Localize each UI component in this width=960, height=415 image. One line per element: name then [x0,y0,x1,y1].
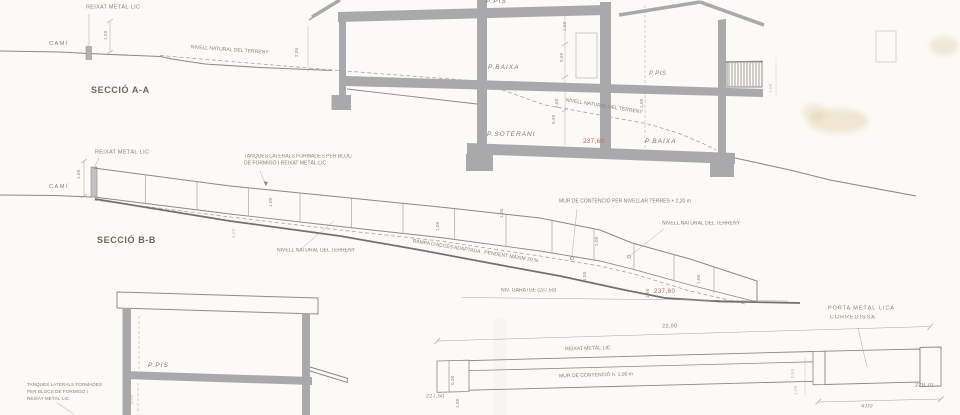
dim-f-aa: 1,00 [769,84,774,93]
aa-terrain [0,14,916,196]
label-tanques-line2-c: PER BLOCS DE FORMIGÓ I [27,390,88,395]
dim-p7-bb: 1,00 [697,275,702,284]
label-tanques-line3-c: REIXAT METÀL·LIC [27,397,69,402]
label-niv-garatge-bb: NIV. GARATGE (237,50) [501,288,556,293]
elevation-value-bb: 237,60 [654,289,675,295]
label-p-baixa-right-aa: P.BAIXA [645,138,676,145]
dim-p2-bb: 1,00 [436,222,441,231]
dim-b-fence: 1,00 [456,399,461,408]
aa-building-section [309,0,896,177]
c-building-section [57,292,348,415]
dim-e-aa: 1,00 [640,99,645,108]
label-p-baixa-left-aa: P.BAIXA [488,64,519,71]
section-title-aa: SECCIÓ A-A [91,85,150,95]
dim-fence-height-aa: 1,50 [104,31,109,40]
dim-p1-bb: 1,00 [269,198,274,207]
elevation-right-fence: 228,70 [915,383,934,389]
bb-terrain-left [0,158,99,198]
elevation-left-fence: 227,50 [426,394,445,400]
dim-p3-bb: 1,00 [500,209,505,218]
label-reixat-metallic-aa: REIXAT METÀL·LIC [86,5,140,11]
dim-a-c: 0,30 [130,395,135,404]
label-tanques-line1-bb: TANQUES LATERALS FORMADES PER BLOC [244,154,352,159]
dim-b-aa: 0,90 [560,53,565,62]
label-tanques-line1-c: TANQUES LATERALS FORMADES [27,383,102,388]
label-tanques-line2-bb: DE FORMIGÓ I REIXAT METÀL·LIC [244,161,326,166]
label-cami-bb: CAMÍ [49,184,69,190]
label-mur-contencio-bb: MUR DE CONTENCIÓ PER NIVELLAR TERRES + 2… [559,199,691,204]
dim-p5-bb: 1,50 [583,272,588,281]
dim-c-aa: 2,60 [555,99,560,108]
dim-total-fence: 22,00 [662,324,677,330]
label-p-pis-right-aa: P.PIS [649,71,667,77]
dim-p4-bb: 1,00 [595,237,600,246]
dim-a-fence: 0,30 [451,376,456,385]
dim-d-aa: 0,90 [552,115,557,124]
aa-dimension-lines [308,5,776,148]
aa-balcony-railing [726,62,763,88]
label-p-soterani-aa: P.SOTERANI [487,131,536,138]
label-niv ell-natural-bb-left: NIVELL NATURAL DEL TERRENY [277,248,355,253]
dim-p6-bb: 1,60 [646,289,651,298]
dim-a-aa: 1,60 [563,22,568,31]
dim-d-fence: 1,00 [794,386,799,395]
elevation-value-aa: 237,60 [583,139,604,145]
dim-left-aa: 2,95 [295,48,300,57]
dim-p8-bb: 0,50 [232,229,237,238]
section-title-bb: SECCIÓ B-B [97,235,156,245]
dim-c-fence: 0,50 [791,369,796,378]
label-p-pis-top-aa: P.PIS [486,0,507,5]
fence-elevation-drawing [435,324,944,405]
label-cami-aa: CAMÍ [49,41,69,47]
label-porta-metallica-line1: PORTA METÀL·LICA [828,306,895,312]
label-porta-metallica-line2: CORREDISSA [830,315,876,321]
label-nivell-natural-bb-right: NIVELL NATURAL DEL TERRENY [662,221,740,226]
drawing-linework [0,0,960,415]
label-p-pis-c: P.PIS [148,362,169,369]
dim-fence-height-bb: 1,50 [77,170,82,179]
dim-gate-fence: 4,00 [861,404,873,410]
architectural-drawing-scan: REIXAT METÀL·LIC CAMÍ NIVELL NATURAL DEL… [0,0,960,415]
label-reixat-metallic-bb: REIXAT METÀL·LIC [95,150,149,156]
bb-fence-wall [94,168,800,304]
